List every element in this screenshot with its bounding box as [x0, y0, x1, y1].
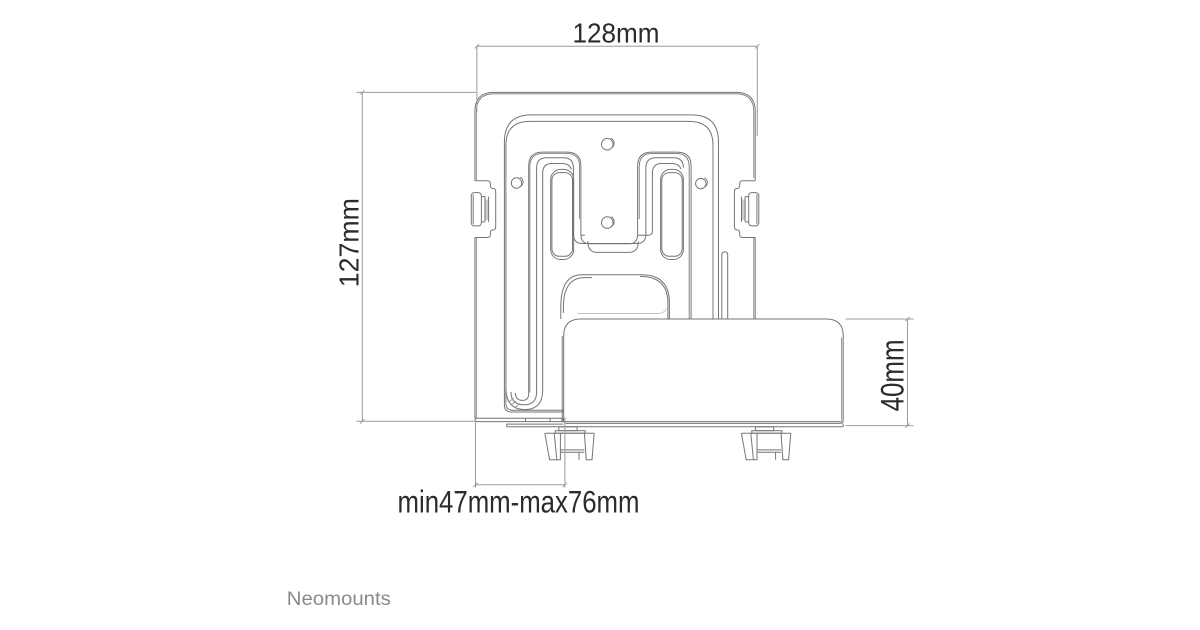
svg-text:Neomounts: Neomounts [287, 588, 391, 610]
svg-text:min47mm-max76mm: min47mm-max76mm [398, 483, 640, 519]
svg-text:127mm: 127mm [333, 198, 364, 287]
svg-text:128mm: 128mm [573, 17, 660, 48]
svg-text:40mm: 40mm [875, 339, 911, 411]
